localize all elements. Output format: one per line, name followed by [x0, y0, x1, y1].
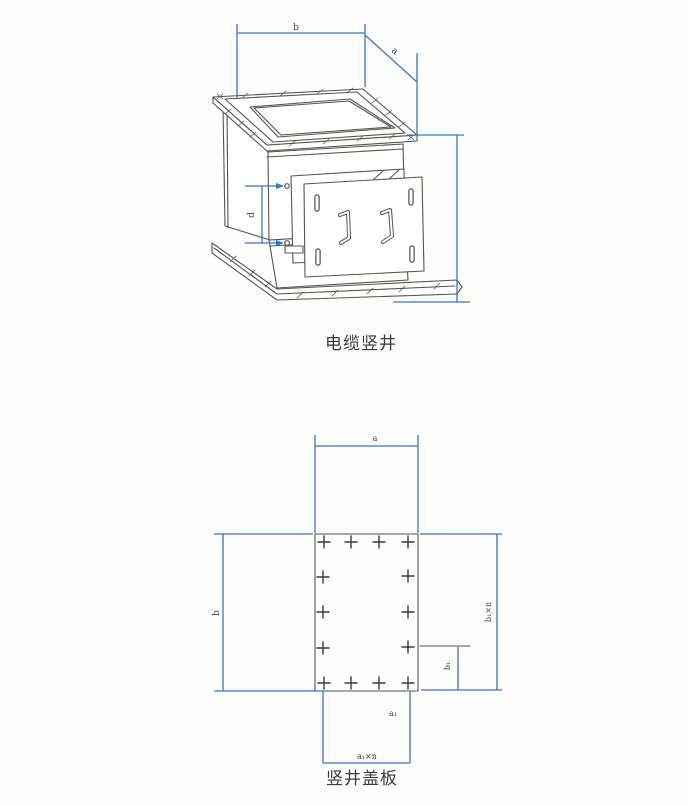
- dim-label-b1-right: b₁: [443, 662, 452, 670]
- caption-cable-shaft: 电缆竖井: [325, 334, 397, 354]
- shaft-door-drawing: [285, 169, 424, 277]
- bolt-cross: [402, 641, 414, 653]
- dim-label-b-top: b: [293, 23, 299, 33]
- scanned-technical-drawing-page: b a d 电缆竖井 a b b₁×n b₁: [0, 0, 688, 805]
- bolt-cross: [317, 606, 329, 618]
- caption-cover-plate: 竖井盖板: [326, 769, 398, 789]
- bolt-cross: [373, 677, 385, 689]
- dim-label-b-left: b: [212, 610, 222, 616]
- bolt-cross: [317, 642, 329, 654]
- bolt-cross: [345, 536, 357, 548]
- dim-label-b1xn-right: b₁×n: [484, 602, 493, 622]
- dim-label-d-left: d: [247, 212, 257, 218]
- figure-cover-plate: a b b₁×n b₁ a₁ a₁×n 竖井盖板: [212, 434, 502, 789]
- bolt-cross: [345, 677, 357, 689]
- bolt-crosses: [317, 536, 414, 689]
- bolt-cross: [402, 536, 414, 548]
- bolt-cross: [318, 677, 330, 689]
- dim-label-a1xn-bottom: a₁×n: [357, 752, 377, 761]
- bolt-cross: [373, 536, 385, 548]
- bolt-cross: [318, 536, 330, 548]
- dim-label-a-diagonal: a: [389, 46, 400, 57]
- bolt-cross: [402, 606, 414, 618]
- drawing-svg: b a d 电缆竖井 a b b₁×n b₁: [0, 0, 688, 805]
- plate-dimension-lines: [214, 435, 502, 763]
- bolt-cross: [402, 677, 414, 689]
- dim-label-a1-bottom: a₁: [389, 709, 397, 718]
- bolt-cross: [402, 570, 414, 582]
- bolt-cross: [317, 571, 329, 583]
- dim-label-a-top: a: [373, 434, 378, 443]
- figure-cable-shaft: b a d 电缆竖井: [212, 23, 470, 354]
